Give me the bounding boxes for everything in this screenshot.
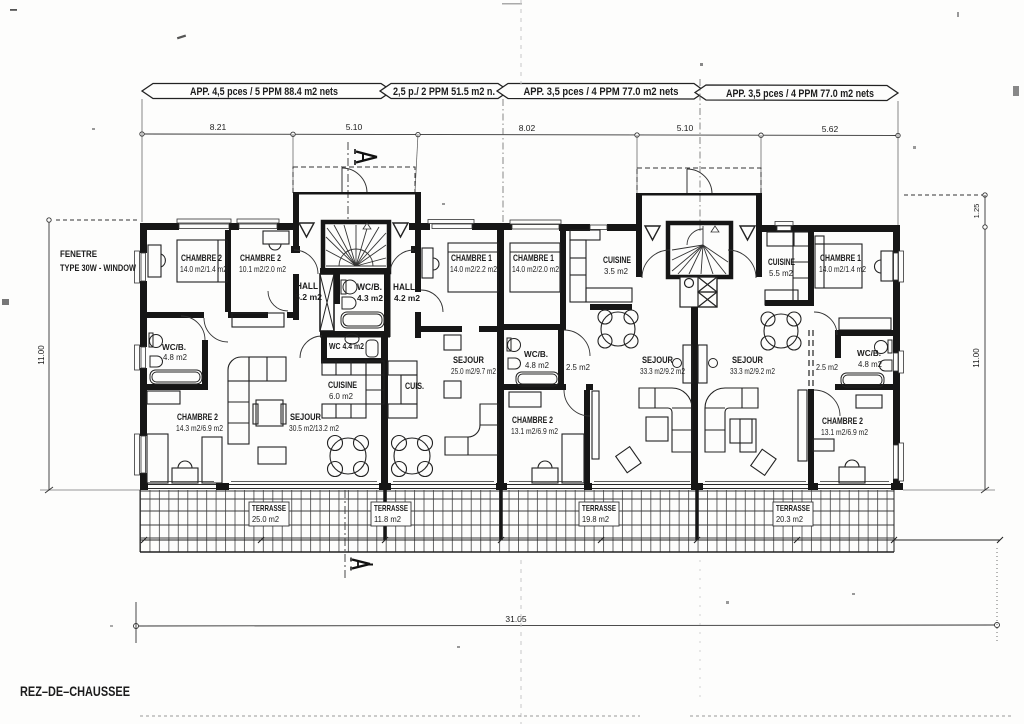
- svg-text:11.00: 11.00: [972, 348, 981, 368]
- svg-text:8.21: 8.21: [210, 122, 227, 132]
- svg-text:CHAMBRE 1: CHAMBRE 1: [513, 253, 554, 263]
- svg-text:APP. 4,5 pces / 5 PPM 88.4 m2: APP. 4,5 pces / 5 PPM 88.4 m2 nets: [190, 86, 338, 98]
- svg-text:31.05: 31.05: [505, 614, 527, 624]
- svg-text:CHAMBRE 2: CHAMBRE 2: [512, 415, 553, 425]
- svg-text:HALL: HALL: [296, 281, 318, 291]
- svg-text:13.1 m2/6.9 m2: 13.1 m2/6.9 m2: [821, 428, 868, 437]
- svg-text:WC/B.: WC/B.: [162, 342, 186, 352]
- svg-text:WC 4.4 m2: WC 4.4 m2: [329, 341, 364, 351]
- svg-text:14.3 m2/6.9 m2: 14.3 m2/6.9 m2: [176, 424, 223, 433]
- svg-text:33.3 m2/9.2 m2: 33.3 m2/9.2 m2: [640, 367, 685, 376]
- svg-text:CHAMBRE 2: CHAMBRE 2: [177, 412, 218, 422]
- svg-text:TERRASSE: TERRASSE: [776, 503, 810, 513]
- svg-text:6.0 m2: 6.0 m2: [329, 392, 354, 401]
- svg-text:WC/B.: WC/B.: [857, 348, 881, 358]
- svg-text:TERRASSE: TERRASSE: [582, 503, 616, 513]
- svg-text:2.5 m2: 2.5 m2: [816, 363, 838, 372]
- svg-text:25.0 m2: 25.0 m2: [252, 515, 280, 524]
- svg-text:SEJOUR: SEJOUR: [290, 412, 321, 422]
- svg-text:2,5 p./ 2 PPM 51.5 m2 n.: 2,5 p./ 2 PPM 51.5 m2 n.: [393, 86, 495, 98]
- svg-text:5.10: 5.10: [346, 122, 363, 132]
- svg-text:5.5 m2: 5.5 m2: [769, 269, 794, 278]
- svg-text:APP. 3,5 pces / 4 PPM 77.0 m2: APP. 3,5 pces / 4 PPM 77.0 m2 nets: [726, 88, 874, 100]
- svg-text:33.3 m2/9.2 m2: 33.3 m2/9.2 m2: [730, 367, 775, 376]
- svg-text:TERRASSE: TERRASSE: [374, 503, 408, 513]
- svg-text:SEJOUR: SEJOUR: [453, 355, 484, 365]
- svg-text:CHAMBRE 2: CHAMBRE 2: [181, 253, 222, 263]
- svg-text:APP. 3,5 pces / 4 PPM 77.0 m2: APP. 3,5 pces / 4 PPM 77.0 m2 nets: [524, 86, 679, 98]
- svg-text:14.0 m2/2.0 m2: 14.0 m2/2.0 m2: [512, 265, 559, 274]
- svg-text:4.3 m2: 4.3 m2: [357, 293, 383, 303]
- svg-text:4.2 m2: 4.2 m2: [394, 293, 420, 303]
- svg-text:19.8 m2: 19.8 m2: [582, 515, 610, 524]
- svg-text:CHAMBRE 2: CHAMBRE 2: [822, 416, 863, 426]
- svg-text:4.8 m2: 4.8 m2: [858, 360, 883, 369]
- svg-text:11.00: 11.00: [37, 345, 46, 365]
- svg-text:HALL: HALL: [393, 282, 415, 292]
- svg-text:5.62: 5.62: [822, 124, 839, 134]
- svg-text:CUISINE: CUISINE: [768, 257, 795, 267]
- svg-text:14.0 m2/1.4 m2: 14.0 m2/1.4 m2: [819, 265, 866, 274]
- svg-text:8.02: 8.02: [519, 123, 536, 133]
- svg-text:5.2 m2: 5.2 m2: [295, 292, 322, 302]
- svg-text:CUISINE: CUISINE: [603, 255, 631, 265]
- svg-text:WC/B.: WC/B.: [524, 349, 548, 359]
- svg-text:CUISINE: CUISINE: [328, 380, 357, 390]
- svg-text:CHAMBRE 1: CHAMBRE 1: [451, 253, 492, 263]
- svg-text:14.0 m2/2.2 m2: 14.0 m2/2.2 m2: [450, 265, 497, 274]
- svg-text:10.1 m2/2.0 m2: 10.1 m2/2.0 m2: [239, 265, 286, 274]
- svg-text:TERRASSE: TERRASSE: [252, 503, 286, 513]
- svg-text:4.8 m2: 4.8 m2: [163, 353, 188, 362]
- svg-text:FENETRE: FENETRE: [60, 249, 97, 259]
- svg-text:20.3 m2: 20.3 m2: [776, 515, 804, 524]
- svg-text:1.25: 1.25: [972, 204, 981, 219]
- svg-text:CHAMBRE 2: CHAMBRE 2: [240, 253, 281, 263]
- svg-text:CUIS.: CUIS.: [405, 381, 424, 391]
- svg-text:WC/B.: WC/B.: [357, 282, 382, 292]
- svg-text:TYPE 30W - WINDOW: TYPE 30W - WINDOW: [60, 263, 136, 273]
- svg-text:13.1 m2/6.9 m2: 13.1 m2/6.9 m2: [511, 427, 558, 436]
- svg-text:4.8 m2: 4.8 m2: [525, 361, 550, 370]
- svg-text:SEJOUR: SEJOUR: [642, 355, 673, 365]
- svg-text:25.0 m2/9.7 m2: 25.0 m2/9.7 m2: [451, 367, 496, 376]
- svg-text:2.5 m2: 2.5 m2: [566, 363, 591, 372]
- svg-text:CHAMBRE 1: CHAMBRE 1: [820, 253, 861, 263]
- svg-text:14.0 m2/1.4 m2: 14.0 m2/1.4 m2: [180, 265, 227, 274]
- svg-text:11.8 m2: 11.8 m2: [374, 515, 402, 524]
- svg-text:5.10: 5.10: [677, 123, 694, 133]
- svg-text:30.5 m2/13.2 m2: 30.5 m2/13.2 m2: [289, 424, 339, 433]
- svg-text:REZ–DE–CHAUSSEE: REZ–DE–CHAUSSEE: [20, 684, 130, 699]
- svg-text:SEJOUR: SEJOUR: [732, 355, 763, 365]
- svg-text:3.5 m2: 3.5 m2: [604, 267, 629, 276]
